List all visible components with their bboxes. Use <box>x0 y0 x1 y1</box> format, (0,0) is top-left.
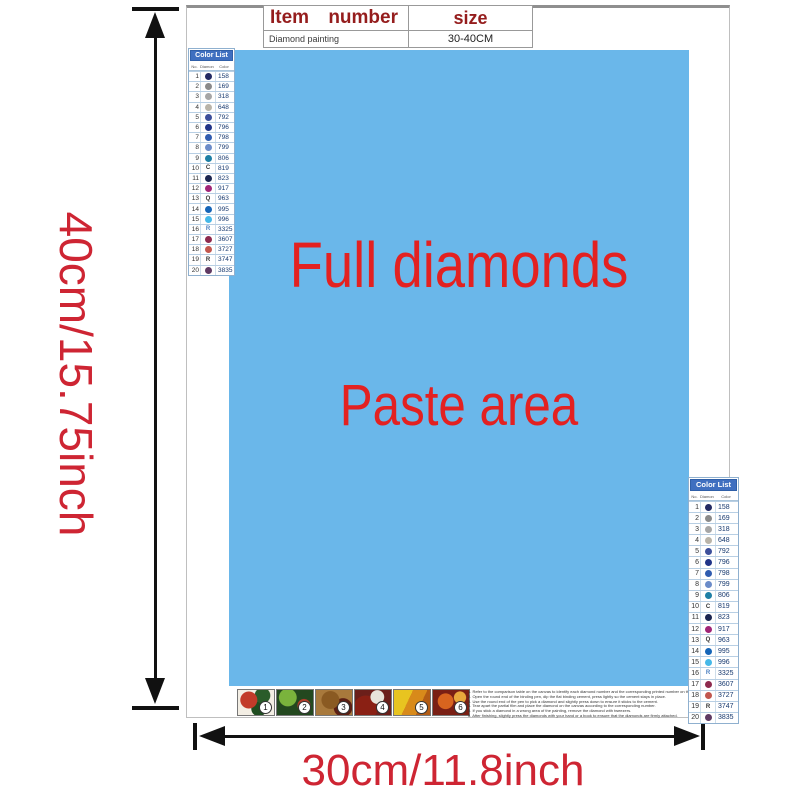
diamond-symbol: Q <box>700 635 716 645</box>
color-code: 792 <box>216 114 234 121</box>
color-row: 4648 <box>689 534 738 545</box>
diamond-color-swatch <box>705 692 712 699</box>
color-code: 996 <box>716 659 738 666</box>
color-row: 8799 <box>189 142 234 152</box>
color-row: 5792 <box>189 112 234 122</box>
color-row-number: 18 <box>189 246 200 253</box>
diamond-color-swatch <box>705 526 712 533</box>
color-code: 158 <box>216 73 234 80</box>
step-thumbnail: 6 <box>432 689 470 716</box>
color-code: 3607 <box>216 236 234 243</box>
color-code: 798 <box>216 134 234 141</box>
color-row: 15996 <box>689 656 738 667</box>
color-code: 963 <box>216 195 234 202</box>
diamond-symbol <box>200 245 216 254</box>
step-number-badge: 6 <box>454 701 467 714</box>
height-arrow-bottom-cap <box>132 706 179 710</box>
diamond-color-swatch <box>205 104 212 111</box>
color-row: 19R3747 <box>189 254 234 264</box>
diamond-color-swatch <box>705 714 712 721</box>
color-row-number: 4 <box>189 104 200 111</box>
color-row-number: 3 <box>189 93 200 100</box>
color-row: 203835 <box>189 265 234 275</box>
color-row-number: 8 <box>189 144 200 151</box>
diamond-symbol <box>700 580 716 590</box>
diamond-symbol: C <box>200 164 216 173</box>
color-list-column-header: Color <box>714 494 738 499</box>
color-row-number: 14 <box>689 648 700 655</box>
diamond-symbol <box>200 92 216 101</box>
color-list-column-headers: No.DiamondColor <box>189 62 234 71</box>
diamond-symbol <box>700 546 716 556</box>
color-list-column-header: No. <box>189 64 200 69</box>
color-code: 799 <box>216 144 234 151</box>
diamond-color-swatch <box>705 537 712 544</box>
color-row-number: 14 <box>189 206 200 213</box>
color-code: 3835 <box>216 267 234 274</box>
color-list-column-headers: No.DiamondColor <box>689 492 738 501</box>
color-code: 3325 <box>716 670 738 677</box>
color-row-number: 13 <box>189 195 200 202</box>
diamond-color-swatch <box>705 515 712 522</box>
color-row: 1158 <box>689 501 738 512</box>
color-code: 806 <box>216 155 234 162</box>
diamond-symbol <box>200 123 216 132</box>
step-number-badge: 4 <box>376 701 389 714</box>
diamond-color-swatch <box>705 592 712 599</box>
step-number-badge: 1 <box>259 701 272 714</box>
color-code: 995 <box>216 206 234 213</box>
diamond-symbol <box>700 713 716 723</box>
diamond-color-swatch <box>205 267 212 274</box>
diamond-symbol <box>700 502 716 512</box>
color-code: 169 <box>216 83 234 90</box>
step-number-badge: 2 <box>298 701 311 714</box>
diamond-color-swatch <box>205 134 212 141</box>
color-row-number: 15 <box>189 216 200 223</box>
color-row: 12917 <box>689 623 738 634</box>
diamond-color-swatch <box>205 206 212 213</box>
diamond-symbol <box>200 215 216 224</box>
color-row-number: 11 <box>189 175 200 182</box>
color-row: 12917 <box>189 183 234 193</box>
color-row-number: 1 <box>689 504 700 511</box>
color-row-number: 12 <box>689 626 700 633</box>
color-row: 3318 <box>189 91 234 101</box>
step-thumbnails: 123456 <box>237 689 470 716</box>
diamond-color-swatch <box>205 246 212 253</box>
color-row-number: 3 <box>689 526 700 533</box>
paste-area-title-line2: Paste area <box>264 372 655 439</box>
diamond-symbol <box>700 657 716 667</box>
color-code: 917 <box>216 185 234 192</box>
color-row: 2169 <box>689 512 738 523</box>
width-dimension-label: 30cm/11.8inch <box>302 746 585 796</box>
step-thumbnail: 3 <box>315 689 353 716</box>
color-list-column-header: Color <box>214 64 234 69</box>
color-row: 4648 <box>189 102 234 112</box>
diamond-symbol <box>200 266 216 275</box>
diamond-color-swatch <box>705 648 712 655</box>
diamond-color-swatch <box>705 659 712 666</box>
diamond-symbol <box>700 591 716 601</box>
color-code: 819 <box>216 165 234 172</box>
diamond-symbol <box>700 691 716 701</box>
color-code: 806 <box>716 592 738 599</box>
color-code: 996 <box>216 216 234 223</box>
diamond-symbol <box>200 174 216 183</box>
diamond-color-swatch <box>205 185 212 192</box>
color-row: 11823 <box>689 612 738 623</box>
color-row-number: 15 <box>689 659 700 666</box>
color-code: 823 <box>716 614 738 621</box>
width-arrow-right-cap <box>701 723 705 750</box>
color-row: 3318 <box>689 523 738 534</box>
color-code: 648 <box>216 104 234 111</box>
color-row-number: 2 <box>189 83 200 90</box>
step-thumbnail: 5 <box>393 689 431 716</box>
info-table-value-row: Diamond painting 30-40CM <box>264 31 532 47</box>
color-row: 14995 <box>189 203 234 213</box>
paste-area: Full diamonds Paste area <box>229 50 689 686</box>
color-row-number: 19 <box>689 703 700 710</box>
color-code: 798 <box>716 570 738 577</box>
color-row: 5792 <box>689 545 738 556</box>
diamond-color-swatch <box>205 175 212 182</box>
color-code: 3607 <box>716 681 738 688</box>
diamond-color-swatch <box>705 570 712 577</box>
color-row: 6796 <box>189 122 234 132</box>
color-row-number: 9 <box>689 592 700 599</box>
color-code: 648 <box>716 537 738 544</box>
diamond-symbol <box>700 524 716 534</box>
color-row-number: 7 <box>189 134 200 141</box>
color-row-number: 5 <box>189 114 200 121</box>
color-row-number: 9 <box>189 155 200 162</box>
color-code: 819 <box>716 603 738 610</box>
height-arrow-down-head <box>145 678 165 704</box>
color-list-column-header: Diamond <box>700 494 714 499</box>
color-row: 173607 <box>689 679 738 690</box>
height-arrow-line <box>154 30 157 685</box>
info-table-header-row: Item number size <box>264 6 532 31</box>
step-thumbnail: 1 <box>237 689 275 716</box>
color-row: 2169 <box>189 81 234 91</box>
color-row-number: 17 <box>689 681 700 688</box>
diamond-symbol <box>700 569 716 579</box>
step-thumbnail: 4 <box>354 689 392 716</box>
color-row: 7798 <box>189 132 234 142</box>
color-list-right: Color ListNo.DiamondColor115821693318464… <box>688 477 739 724</box>
size-header-cell: size <box>409 6 532 30</box>
item-name-cell: Diamond painting <box>264 31 409 47</box>
color-row: 7798 <box>689 568 738 579</box>
item-info-table: Item number size Diamond painting 30-40C… <box>263 5 533 48</box>
instruction-line: 6. After finishing, slightly press the d… <box>468 714 688 719</box>
diamond-color-swatch <box>205 236 212 243</box>
diamond-color-swatch <box>205 83 212 90</box>
color-row-number: 17 <box>189 236 200 243</box>
color-row-number: 20 <box>189 267 200 274</box>
color-row-number: 13 <box>689 637 700 644</box>
color-code: 318 <box>216 93 234 100</box>
diamond-symbol: R <box>200 225 216 234</box>
color-row: 9806 <box>689 590 738 601</box>
diamond-color-swatch <box>205 144 212 151</box>
color-row-number: 10 <box>189 165 200 172</box>
diamond-color-swatch <box>205 73 212 80</box>
diamond-symbol: Q <box>200 194 216 203</box>
width-arrow-right-head <box>674 726 700 746</box>
diamond-symbol <box>200 72 216 81</box>
color-row: 10C819 <box>189 163 234 173</box>
diamond-symbol <box>700 680 716 690</box>
color-list-left: Color ListNo.DiamondColor115821693318464… <box>188 48 235 276</box>
diamond-color-swatch <box>705 548 712 555</box>
step-thumbnail: 2 <box>276 689 314 716</box>
diamond-color-swatch <box>205 155 212 162</box>
color-row-number: 16 <box>189 226 200 233</box>
diamond-symbol <box>200 204 216 213</box>
diamond-symbol <box>200 143 216 152</box>
diamond-symbol <box>700 646 716 656</box>
color-row-number: 2 <box>689 515 700 522</box>
color-row-number: 8 <box>689 581 700 588</box>
diamond-color-swatch <box>705 559 712 566</box>
diamond-color-swatch <box>705 626 712 633</box>
color-code: 796 <box>216 124 234 131</box>
color-row: 14995 <box>689 645 738 656</box>
color-row: 6796 <box>689 556 738 567</box>
height-arrow-top-cap <box>132 7 179 11</box>
color-code: 3747 <box>216 256 234 263</box>
color-row-number: 6 <box>689 559 700 566</box>
item-header-label: Item <box>270 7 309 29</box>
color-row: 9806 <box>189 153 234 163</box>
color-row-number: 6 <box>189 124 200 131</box>
color-code: 3727 <box>716 692 738 699</box>
diamond-color-swatch <box>205 93 212 100</box>
color-row-number: 16 <box>689 670 700 677</box>
color-row-number: 19 <box>189 256 200 263</box>
step-number-badge: 3 <box>337 701 350 714</box>
width-arrow-line <box>218 735 680 738</box>
color-row-number: 1 <box>189 73 200 80</box>
color-code: 792 <box>716 548 738 555</box>
color-list-column-header: Diamond <box>200 64 214 69</box>
canvas-sheet: Item number size Diamond painting 30-40C… <box>186 5 730 718</box>
color-row: 13Q963 <box>189 193 234 203</box>
color-row: 13Q963 <box>689 634 738 645</box>
diamond-symbol <box>200 235 216 244</box>
color-row: 183727 <box>189 244 234 254</box>
diamond-symbol <box>200 154 216 163</box>
color-row: 8799 <box>689 579 738 590</box>
color-code: 318 <box>716 526 738 533</box>
color-code: 169 <box>716 515 738 522</box>
color-code: 963 <box>716 637 738 644</box>
color-code: 158 <box>716 504 738 511</box>
diamond-symbol: R <box>200 255 216 264</box>
color-list-title: Color List <box>690 479 737 491</box>
instructions-text: 1. Refer to the comparison table on the … <box>468 690 688 719</box>
paste-area-title-line1: Full diamonds <box>264 228 655 302</box>
color-row-number: 10 <box>689 603 700 610</box>
number-header-label: number <box>328 7 398 29</box>
diamond-color-swatch <box>705 504 712 511</box>
diamond-color-swatch <box>705 581 712 588</box>
diamond-symbol <box>700 557 716 567</box>
color-list-column-header: No. <box>689 494 700 499</box>
color-row-number: 5 <box>689 548 700 555</box>
color-row-number: 11 <box>689 614 700 621</box>
color-row-number: 7 <box>689 570 700 577</box>
diamond-symbol: R <box>700 668 716 678</box>
color-code: 917 <box>716 626 738 633</box>
width-arrow-left-cap <box>193 723 197 750</box>
color-row-number: 12 <box>189 185 200 192</box>
step-number-badge: 5 <box>415 701 428 714</box>
color-code: 3747 <box>716 703 738 710</box>
color-code: 3727 <box>216 246 234 253</box>
diamond-symbol <box>200 113 216 122</box>
color-code: 796 <box>716 559 738 566</box>
size-value-cell: 30-40CM <box>409 31 532 47</box>
color-row: 173607 <box>189 234 234 244</box>
diamond-color-swatch <box>705 681 712 688</box>
diamond-color-swatch <box>705 614 712 621</box>
diamond-symbol <box>200 184 216 193</box>
color-list-title: Color List <box>190 50 233 61</box>
color-code: 799 <box>716 581 738 588</box>
color-row: 203835 <box>689 712 738 723</box>
diamond-color-swatch <box>205 124 212 131</box>
color-code: 3325 <box>216 226 234 233</box>
diamond-color-swatch <box>205 114 212 121</box>
diamond-color-swatch <box>205 216 212 223</box>
color-row-number: 20 <box>689 714 700 721</box>
diamond-symbol: R <box>700 702 716 712</box>
color-code: 3835 <box>716 714 738 721</box>
diamond-symbol <box>700 535 716 545</box>
diamond-symbol: C <box>700 602 716 612</box>
color-row: 19R3747 <box>689 701 738 712</box>
diamond-symbol <box>700 513 716 523</box>
color-row: 11823 <box>189 173 234 183</box>
color-code: 823 <box>216 175 234 182</box>
diamond-symbol <box>700 624 716 634</box>
color-row: 1158 <box>189 71 234 81</box>
color-row-number: 4 <box>689 537 700 544</box>
color-code: 995 <box>716 648 738 655</box>
color-row: 16R3325 <box>689 667 738 678</box>
height-dimension-label: 40cm/15.75inch <box>49 212 103 537</box>
color-row: 183727 <box>689 690 738 701</box>
diamond-symbol <box>200 103 216 112</box>
color-row: 15996 <box>189 214 234 224</box>
color-row: 16R3325 <box>189 224 234 234</box>
diamond-symbol <box>700 613 716 623</box>
diamond-symbol <box>200 82 216 91</box>
color-row: 10C819 <box>689 601 738 612</box>
color-row-number: 18 <box>689 692 700 699</box>
diamond-symbol <box>200 133 216 142</box>
item-number-header-cell: Item number <box>264 6 409 30</box>
